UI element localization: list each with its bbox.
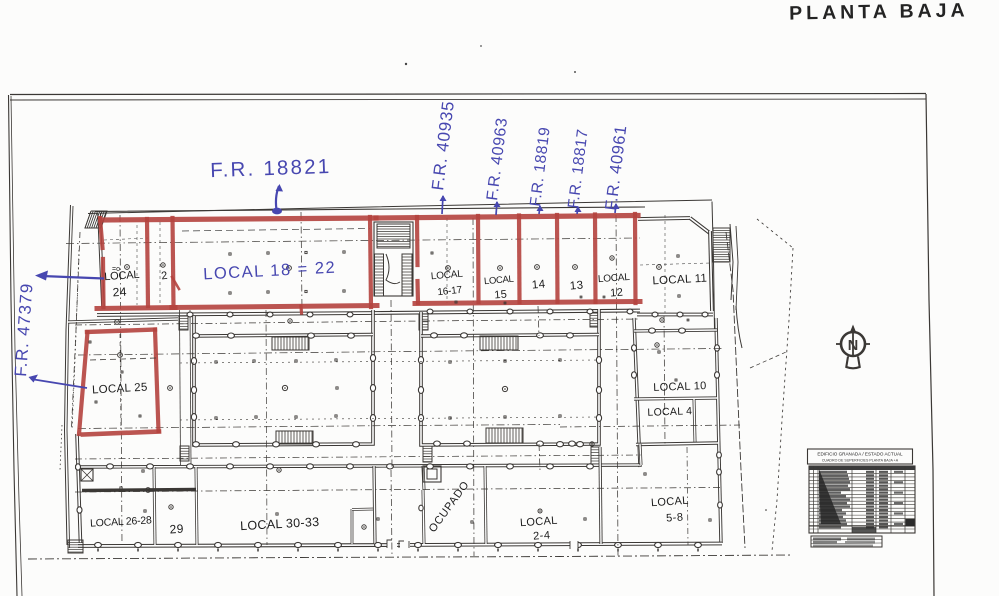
svg-text:12: 12 [610, 287, 624, 300]
svg-text:CUADRO DE SUPERFICIES PLANTA: CUADRO DE SUPERFICIES PLANTA BAJA +A [822, 459, 899, 463]
svg-text:LOCAL 4: LOCAL 4 [647, 405, 692, 419]
svg-text:N: N [848, 338, 858, 354]
svg-text:29: 29 [169, 522, 184, 537]
svg-text:F.R. 18821: F.R. 18821 [210, 155, 332, 182]
svg-text:24: 24 [112, 285, 127, 300]
svg-text:5-8: 5-8 [666, 511, 684, 524]
svg-text:2-4: 2-4 [533, 529, 551, 542]
svg-text:14: 14 [531, 278, 546, 291]
svg-text:15: 15 [494, 288, 508, 301]
svg-text:13: 13 [569, 279, 584, 292]
svg-text:PLANTA BAJA: PLANTA BAJA [789, 0, 969, 25]
svg-text:LOCAL: LOCAL [598, 272, 631, 285]
svg-text:EDIFICIO GRANADA / ESTADO ACTU: EDIFICIO GRANADA / ESTADO ACTUAL [817, 452, 903, 457]
svg-text:LOCAL: LOCAL [104, 269, 140, 283]
svg-text:LOCAL 10: LOCAL 10 [653, 380, 707, 394]
